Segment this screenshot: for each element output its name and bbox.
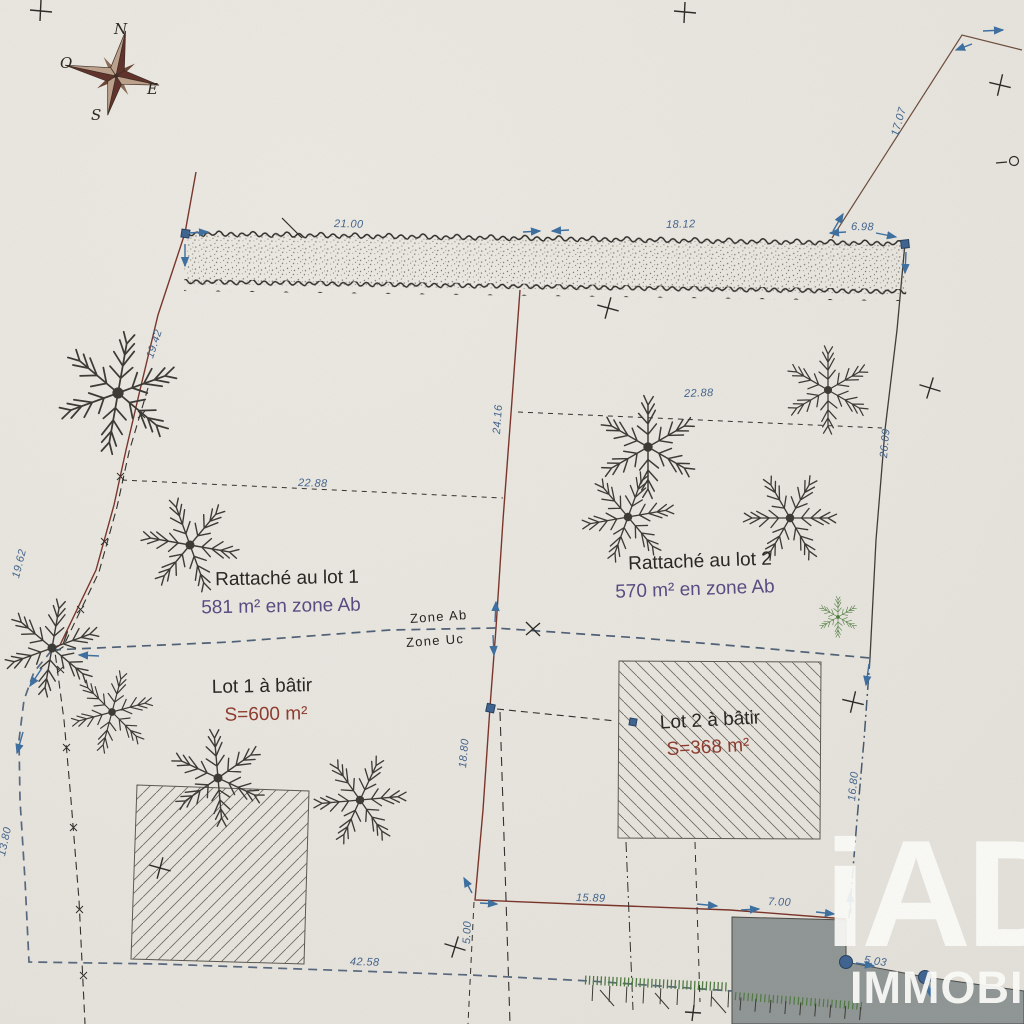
measurement-label: 22.88 bbox=[684, 387, 714, 400]
tree-icon bbox=[0, 587, 114, 710]
tree-icon bbox=[768, 331, 887, 449]
tree-icon bbox=[151, 711, 286, 845]
measurement-label: 24.16 bbox=[491, 404, 505, 434]
tree-icon bbox=[299, 739, 420, 861]
tree-icon bbox=[598, 396, 698, 499]
measurement-label: 16.80 bbox=[846, 771, 861, 802]
lot1-hatch-area bbox=[131, 785, 309, 964]
measurement-label: 5.00 bbox=[461, 921, 474, 944]
lot1-title: Lot 1 à bâtir bbox=[147, 674, 377, 700]
measurement-label: 22.88 bbox=[298, 477, 328, 490]
watermark-subtitle: IMMOBILIER bbox=[850, 962, 1024, 1014]
compass-letter-east: E bbox=[147, 80, 158, 98]
tree-icon bbox=[122, 477, 258, 613]
measurement-label: 6.98 bbox=[851, 221, 874, 233]
attached-lot2-area: 570 m² en zone Ab bbox=[580, 575, 811, 605]
measurement-label: 7.00 bbox=[768, 896, 791, 909]
measurement-label: 17.07 bbox=[889, 106, 909, 138]
zone-label-above: Zone Ab bbox=[409, 607, 467, 626]
tree-icon bbox=[62, 661, 161, 762]
measurement-label: 18.80 bbox=[457, 738, 472, 768]
tree-icon bbox=[49, 322, 187, 463]
attached-lot1-area: 581 m² en zone Ab bbox=[166, 594, 396, 620]
compass-letter-west: O bbox=[60, 54, 72, 72]
compass-letter-south: S bbox=[91, 106, 101, 124]
survey-plan: N O E S 21.00 18.12 6.98 17.07 19.42 24.… bbox=[0, 0, 1024, 1024]
measurement-label: 13.80 bbox=[0, 826, 14, 857]
compass-letter-north: N bbox=[114, 20, 127, 38]
measurement-label: 42.58 bbox=[350, 956, 380, 969]
measurement-label: 21.00 bbox=[334, 218, 364, 231]
zone-label-below: Zone Uc bbox=[405, 631, 464, 650]
attached-lot1-title: Rattaché au lot 1 bbox=[172, 566, 402, 592]
measurement-label: 19.42 bbox=[144, 328, 165, 360]
hedge-strip bbox=[184, 227, 907, 301]
lot1-area: S=600 m² bbox=[151, 702, 381, 728]
watermark-brand: iAD bbox=[824, 818, 1024, 970]
measurement-label: 18.12 bbox=[666, 218, 696, 231]
measurement-label: 26.09 bbox=[878, 428, 893, 458]
attached-lot2-title: Rattaché au lot 2 bbox=[585, 547, 816, 577]
measurement-label: 19.62 bbox=[10, 548, 29, 580]
talus-marks bbox=[585, 980, 866, 1014]
measurement-label: 15.89 bbox=[576, 892, 606, 905]
bush-icon bbox=[818, 596, 858, 637]
